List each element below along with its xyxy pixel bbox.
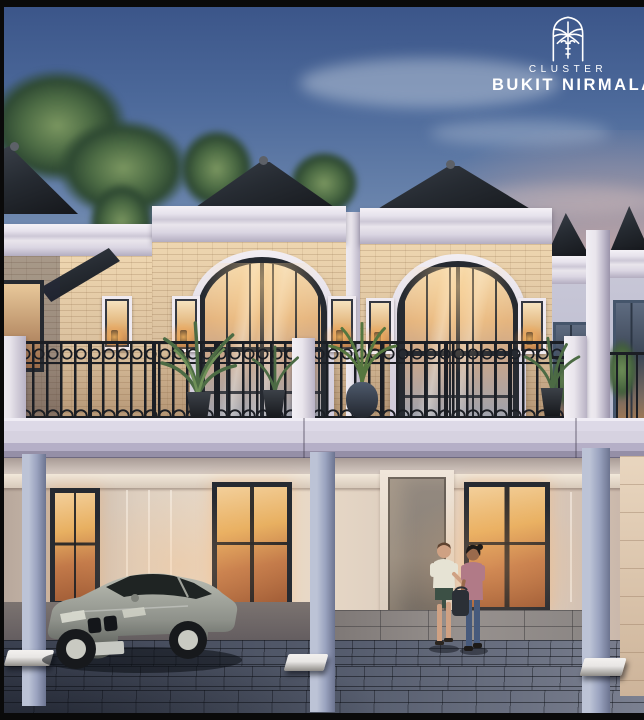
bay2-cornice xyxy=(360,208,552,244)
balcony-plant xyxy=(243,336,307,420)
plant-leaves xyxy=(243,336,307,394)
car-grille xyxy=(103,615,117,631)
distant-cornice xyxy=(548,256,588,284)
frame-bar-left xyxy=(0,0,4,720)
plant-leaves xyxy=(158,312,238,398)
couple xyxy=(424,538,496,656)
cloud xyxy=(430,120,610,146)
car-wheel-rim xyxy=(178,630,198,650)
beam-joint xyxy=(303,418,305,458)
railing-post xyxy=(508,341,512,417)
bay1-cornice xyxy=(152,206,346,242)
roof-finial xyxy=(446,160,455,169)
roof-finial xyxy=(259,156,268,165)
car-wheel-rim xyxy=(66,639,86,659)
railing-post xyxy=(88,341,92,417)
palm-tree-arch-icon xyxy=(547,14,589,62)
railing-post xyxy=(152,341,156,417)
plant-leaves xyxy=(324,316,400,386)
car-grille xyxy=(87,617,101,633)
logo-project-name: BUKIT NIRMALA xyxy=(492,76,644,95)
railing-post xyxy=(444,341,448,417)
frame-bar-top xyxy=(0,0,644,7)
carport-column xyxy=(582,448,610,720)
car xyxy=(38,548,254,676)
distant-cornice xyxy=(610,250,644,278)
parking-stopper xyxy=(284,654,329,671)
plant-leaves xyxy=(518,330,586,392)
person-shadow xyxy=(429,645,459,653)
plant-pot xyxy=(260,390,288,418)
roof-finial xyxy=(10,142,19,151)
balcony-plant xyxy=(158,312,238,422)
logo: CLUSTER BUKIT NIRMALA xyxy=(488,12,644,98)
distant-railing xyxy=(606,352,644,428)
plant-pot xyxy=(538,388,566,416)
architectural-render: CLUSTER BUKIT NIRMALA xyxy=(0,0,644,720)
balcony-plant xyxy=(324,316,400,420)
balcony-plant xyxy=(518,330,586,418)
beam-joint xyxy=(575,418,577,458)
plant-urn xyxy=(346,382,378,418)
carport-column xyxy=(310,452,335,712)
frame-bar-bottom xyxy=(0,713,644,720)
car-mirror xyxy=(131,594,139,602)
woman xyxy=(452,544,485,651)
parking-stopper xyxy=(579,658,626,676)
logo-cluster-label: CLUSTER xyxy=(498,64,638,75)
